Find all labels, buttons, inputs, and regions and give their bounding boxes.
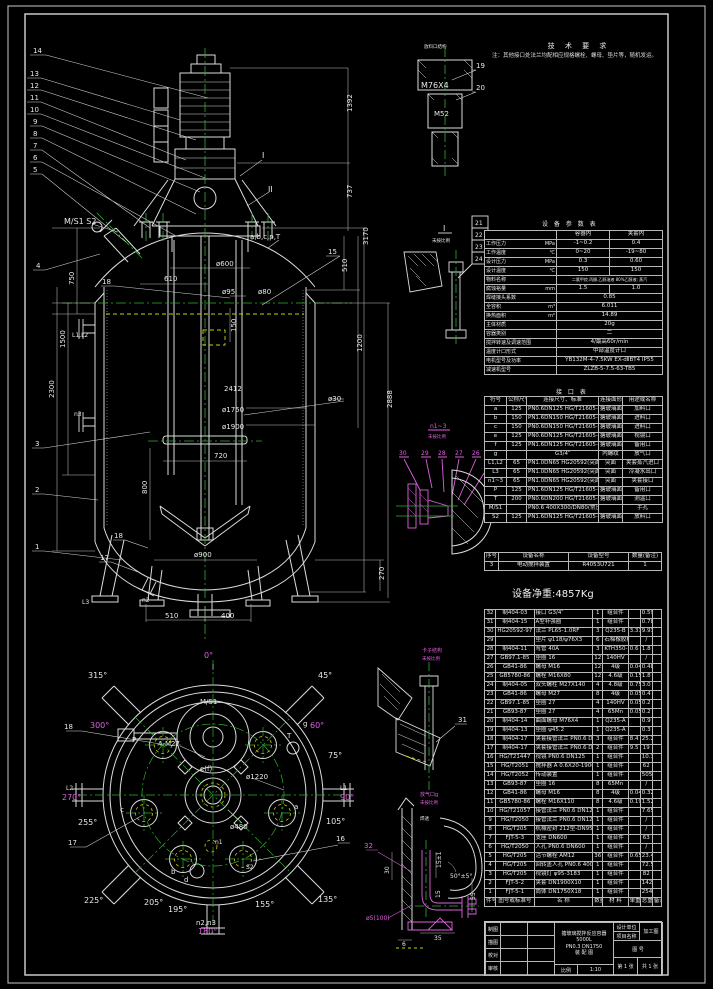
label-ms1-s2: M/S1 S2	[64, 217, 96, 226]
balloon-18: 18	[102, 278, 111, 286]
bom-row: 11GB5780-86螺栓 M16X1108 4.6级0.191.52	[485, 799, 662, 808]
balloon-1: 1	[35, 543, 39, 551]
balloon-20: 20	[476, 84, 485, 92]
nozzle-row: f125 PN1.6DN125 HG/T21605-91搪玻璃面 备用口	[485, 442, 663, 451]
balloon-27: 27	[455, 450, 463, 457]
balloon-5: 5	[33, 166, 37, 174]
angle-195: 195°	[168, 905, 187, 914]
bom-row: 10HG/T21057接管法兰 PN0.6 DN1251 组合件7.65	[485, 808, 662, 817]
bom-row: 23GB41-86螺母 M278 4级0.050.4	[485, 691, 662, 700]
detail-g-subtitle: 未按比例	[420, 799, 438, 806]
dim-g15: 15	[435, 890, 442, 898]
bom-row: 19制404-13垫圈 ψ45.21 Q235-A0.3	[485, 727, 662, 736]
nozzle-row: a125 PN0.6DN125 HG/T21605-91搪玻璃面 加料口	[485, 406, 663, 415]
balloon-2: 2	[35, 486, 39, 494]
label-L1: L1	[340, 785, 347, 792]
tb-work-tag: 加工图	[639, 922, 663, 941]
dip-tube	[236, 240, 242, 505]
label-ef: e(f)	[200, 765, 213, 773]
label-n3: n3	[74, 411, 82, 418]
nozzle-header-row: 符号公称尺寸连接尺寸、标准连接面形式用途或名称	[485, 397, 663, 406]
detail-clamp-subtitle: 未按比例	[422, 655, 440, 662]
angle-105: 105°	[326, 817, 345, 826]
angle-0: 0°	[204, 651, 213, 660]
balloon-21: 21	[475, 220, 483, 227]
balloon-28: 28	[438, 450, 446, 457]
label-n1: n1	[215, 839, 223, 846]
section-mark-1: I	[262, 151, 264, 160]
dim-g50: 50°±5°	[450, 873, 472, 880]
dim-150: 150	[230, 319, 238, 332]
cad-assembly-drawing: 14 13 12 11 10 9 8 7 6 5 4 3 2 1 15 18 1…	[0, 0, 713, 989]
bom-row: 24制404-05双头螺柱 M27X1404 4.8级0.753.0	[485, 682, 662, 691]
balloon-23: 23	[475, 244, 483, 251]
tb-row-check: 校对	[485, 948, 501, 962]
tb-sheets: 共 1 张	[637, 957, 663, 976]
balloon-4: 4	[36, 262, 41, 270]
dim-g5: ø5(100)	[366, 915, 390, 922]
bom-table: 32制404-03接口 G3/4″1 组合件0.59 31制404-15A型补强…	[484, 609, 662, 907]
label-4m27: 4-M27	[158, 740, 180, 748]
device-row: 3电动搅拌装置R4053U7211	[485, 562, 662, 571]
label-b: b	[171, 868, 176, 876]
dim-g55: 55	[470, 892, 477, 900]
angle-270: 270°	[62, 793, 81, 802]
bom-row: 27GB97.1-85垫圈 1612 140HV/	[485, 655, 662, 664]
parameter-table: 容器内夹套内 工作压力MPa-1~0.20.4 工作温度℃0~20-19~80 …	[484, 230, 663, 375]
detail-g-title: 放气口g	[420, 791, 438, 798]
plan-view-leaders	[66, 664, 350, 861]
dim-737: 737	[346, 185, 354, 198]
angle-90: 90°	[340, 793, 354, 802]
dim-1200: 1200	[356, 334, 364, 352]
bom-row: 4HG/T205回转盖人孔 PN0.6 400X3001 组合件72.5	[485, 862, 662, 871]
nozzle-table: 符号公称尺寸连接尺寸、标准连接面形式用途或名称 a125 PN0.6DN125 …	[484, 396, 663, 523]
bom-row: 20制404-14曲面螺母 M76X41 Q235-A0.9	[485, 718, 662, 727]
tb-blank-4	[500, 961, 528, 976]
bom-row: 15HG/T2051搅拌器 A 0.6X20-19001 组合件62	[485, 763, 662, 772]
dim-3170: 3170	[362, 227, 370, 245]
device-header-row: 序号设备名称设备型号数量(备注)	[485, 553, 662, 562]
dim-800: 800	[141, 481, 149, 494]
bom-row: 1FJT-5-1筒体 DN1750X181 组合件2549	[485, 889, 662, 898]
tb-blank-7	[527, 948, 555, 962]
dim-g15a: 15±1	[436, 851, 443, 868]
front-view-text: 14 13 12 11 10 9 8 7 6 5 4 3 2 1 15 18 1…	[30, 47, 394, 620]
balloon-3: 3	[35, 440, 39, 448]
label-n2: n2	[142, 597, 150, 604]
tb-blank-5	[527, 922, 555, 936]
angle-205: 205°	[144, 898, 163, 907]
balloon-22: 22	[475, 232, 483, 239]
angle-255: 255°	[78, 818, 97, 827]
motor-bracket	[154, 88, 168, 162]
balloon-8: 8	[33, 130, 37, 138]
lug-315	[102, 686, 141, 725]
label-ms1: M/S1	[200, 698, 217, 706]
nozzle-row: n1~365 PN1.0DN65 HG20592(突面RF)突面 夹套接口	[485, 478, 663, 487]
dim-750: 750	[68, 272, 76, 285]
bom-row: 7FJT-5-3支座 DN6001 组合件63	[485, 835, 662, 844]
dim-720: 720	[214, 452, 227, 460]
balloon-14: 14	[33, 47, 42, 55]
label-c: c	[120, 806, 124, 814]
tb-blank-6	[527, 935, 555, 949]
label-abcpt: a,b,c,p,T	[250, 233, 281, 241]
tb-blank-8	[527, 961, 555, 976]
nozzle-row: M/S1 PN0.6 400X300/DN80(常压) 手孔	[485, 505, 663, 514]
dim-95: ø95	[222, 288, 235, 296]
balloon-9: 9	[33, 118, 37, 126]
bom-row: 13GB93-87垫圈 168 65Mn/	[485, 781, 662, 790]
tb-scale-label: 比例	[554, 964, 578, 976]
dim-2300: 2300	[48, 380, 56, 398]
tb-row-draw: 制图	[485, 922, 501, 936]
detail-n13: n1~3 未按比例 30 29 28 27 26 25 搪玻璃测温套管	[396, 423, 498, 554]
bom-row: 14HG/T2052传动装置1 组合件505	[485, 772, 662, 781]
angle-45: 45°	[318, 671, 332, 680]
tb-blank-1	[500, 922, 528, 936]
label-g: g	[303, 720, 307, 728]
detail-I-title: I	[443, 224, 445, 233]
angle-135: 135°	[318, 895, 337, 904]
dim-400: 400	[221, 612, 234, 620]
nozzle-row: b150 PN1.6DN150 HG/T21605-91搪玻璃面 进料口	[485, 415, 663, 424]
handhole-ms1	[100, 220, 140, 262]
angle-225: 225°	[84, 896, 103, 905]
bom-row: 22GB97.1-85垫圈 274 140HV0.050.2	[485, 700, 662, 709]
balloon-11: 11	[30, 94, 39, 102]
weld-note: 焊透	[420, 815, 429, 822]
dim-2888: 2888	[386, 390, 394, 408]
label-a: a	[294, 803, 298, 811]
angle-315: 315°	[88, 671, 107, 680]
nozzle-row: P125 PN1.6DN125 HG/T21605-91搪玻璃面 备用口	[485, 487, 663, 496]
dim-270: 270	[378, 567, 386, 580]
leader-lines	[27, 55, 344, 572]
bom-row: 18制404-17夹套接管法兰 PN0.6 DN1253 组合件8.425.2	[485, 736, 662, 745]
dim-510: 510	[341, 259, 349, 272]
dim-1500: 1500	[59, 330, 67, 348]
detail-clamp: 卡子结构 未按比例 31	[378, 647, 467, 792]
label-d: d	[184, 876, 188, 884]
tb-scale-value: 1:10	[577, 964, 614, 976]
detail-clamp-title: 卡子结构	[422, 647, 442, 654]
balloon-32: 32	[364, 842, 373, 850]
nozzle-table-title: 接 口 表	[556, 387, 588, 396]
dim-1392: 1392	[346, 94, 354, 112]
bom-row: 12GB41-86螺母 M168 4级0.040.32	[485, 790, 662, 799]
detail-I: I 未按比例 21 22 23 24	[404, 216, 488, 345]
bom-row: 30HG20592-97法兰 PL65-1.0RF3 Q235-B3.319.9…	[485, 628, 662, 637]
balloon-17: 17	[100, 554, 109, 562]
detail-I-subtitle: 未按比例	[432, 237, 450, 244]
dim-610: 610	[164, 275, 177, 283]
tb-blank-2	[500, 935, 528, 949]
device-table: 序号设备名称设备型号数量(备注) 3电动搅拌装置R4053U7211	[484, 552, 662, 571]
angle-60: 60°	[310, 721, 324, 730]
bom-row: 29垫片 ψ118/ψ76X36 石棉橡胶板/	[485, 637, 662, 646]
nozzle-row: L1,L265 PN1.0DN65 HG20592(突面RF)突面 夹套蒸汽进口	[485, 460, 663, 469]
bom-row: 26GB41-86螺母 M1612 4级0.040.48	[485, 664, 662, 673]
angle-75: 75°	[328, 751, 342, 760]
param-table-title: 设 备 参 数 表	[542, 219, 598, 228]
tb-blank-3	[500, 948, 528, 962]
nozzle-row: g G3/4″内螺纹 放气口	[485, 451, 663, 460]
dim-30: ø30	[328, 395, 341, 403]
detail-cap-title: 放料口结构	[424, 43, 447, 50]
balloon-6: 6	[33, 154, 38, 162]
balloon-18p: 18	[64, 723, 73, 731]
tb-drawing-no: 图 号	[613, 940, 663, 958]
bom-row: 28制404-11弯管 40A3 KTH350-100.61.8	[485, 646, 662, 655]
balloon-31: 31	[458, 716, 467, 724]
tb-product-title: 搪玻璃搅拌反应容器 5000L PN0.3 DN1750 装 配 图	[554, 922, 614, 965]
label-p: P	[132, 736, 136, 744]
tb-sheet: 第 1 张	[613, 957, 638, 976]
balloon-19: 19	[476, 62, 485, 70]
dim-510b: 510	[165, 612, 178, 620]
tech-title: 技 术 要 求	[492, 42, 666, 51]
detail-cap: 放料口结构 M76X4 M52 19 20	[418, 43, 485, 178]
balloon-26: 26	[472, 450, 480, 457]
technical-requirements: 技 术 要 求 注：其他接口处法兰均配相应规格螺栓、螺母、垫片等，随机发运。	[492, 42, 666, 60]
label-L2: L2	[66, 785, 73, 792]
label-l3: L3	[82, 599, 89, 606]
label-t: T	[286, 732, 292, 740]
param-col-vessel: 容器内	[557, 231, 610, 240]
bom-row: 31制404-15A型补强圈1 组合件0.78	[485, 619, 662, 628]
dim-1750: ø1750	[222, 406, 244, 414]
bom-row: 6HG/T2050人孔 PN0.6 DN6001 组合件/	[485, 844, 662, 853]
detail-n13-subtitle: 未按比例	[428, 433, 446, 440]
balloon-13: 13	[30, 70, 39, 78]
balloon-17p: 17	[68, 839, 77, 847]
thread-m76x4: M76X4	[421, 81, 449, 90]
param-col-jacket: 夹套内	[610, 231, 663, 240]
angle-300: 300°	[90, 721, 109, 730]
tb-row-trace: 描图	[485, 935, 501, 949]
dim-1220: ø1220	[246, 773, 268, 781]
bom-row: 25GB5780-86螺栓 M16X8012 4.6级0.151.8	[485, 673, 662, 682]
bom-row: 17制404-17夹套接管法兰 PN0.6 DN1502 组合件9.519	[485, 745, 662, 754]
angle-155: 155°	[255, 900, 274, 909]
dim-g30: 30	[384, 866, 391, 874]
dim-g6: 6	[402, 941, 406, 948]
tech-note: 注：其他接口处法兰均配相应规格螺栓、螺母、垫片等，随机发运。	[492, 53, 666, 60]
bom-row: 16HG/T21447视镜 PN0.6 DN1251 组合件10.3	[485, 754, 662, 763]
net-weight-note: 设备净重:4857Kg	[512, 585, 594, 600]
balloon-16p: 16	[336, 835, 345, 843]
section-mark-2: II	[268, 185, 273, 194]
dim-g35: 35	[434, 935, 442, 942]
angle-180: 180°	[198, 927, 217, 936]
balloon-24: 24	[475, 256, 483, 263]
nozzle-row: e125 PN0.6DN125 HG/T21605-91搪玻璃面 视镜口	[485, 433, 663, 442]
dim-600: ø600	[216, 260, 234, 268]
bom-header-row: 件号图号或标准号名 称数量 材 料单重总重备注	[485, 898, 662, 907]
nozzle-row: S2125 PN1.6DN125 HG/T21605-91搪玻璃面 放料口	[485, 514, 663, 523]
dim-80: ø80	[258, 288, 271, 296]
dim-900: ø900	[194, 551, 212, 559]
tb-row-audit: 审核	[485, 961, 501, 976]
balloon-10: 10	[30, 106, 39, 114]
bom-row: 9HG/T2050接管法兰 PN0.6 DN1251 组合件/	[485, 817, 662, 826]
bom-row: 3HG/T205视镜灯 ψ95-31831 组合件82	[485, 871, 662, 880]
lug-225	[102, 865, 141, 904]
bom-row: 8HG/T205机械密封 212型-DN951 组合件/	[485, 826, 662, 835]
bom-row: 32制404-03接口 G3/4″1 组合件0.59	[485, 610, 662, 619]
nozzle-row: T200 PN0.6DN200 HG/T21605-91搪玻璃面 测温口	[485, 496, 663, 505]
balloon-18b: 18	[114, 532, 123, 540]
balloon-29: 29	[421, 450, 429, 457]
dim-480: ø480	[230, 823, 248, 831]
bom-row: 5HG/T205活节螺栓 AM1236 组合件0.6523.4	[485, 853, 662, 862]
dim-2412: 2412	[224, 385, 242, 393]
dim-1900: ø1900	[222, 423, 244, 431]
balloon-15: 15	[328, 248, 337, 256]
detail-n13-title: n1~3	[430, 423, 447, 430]
balloon-30: 30	[399, 450, 407, 457]
balloon-7: 7	[33, 142, 37, 150]
detail-vent-g: 放气口g 未按比例 焊透 32 30 15±1 50°±5° 15 55 35 …	[364, 791, 482, 948]
nozzle-row: L365 PN1.0DN65 HG20592(突面RF)突面 冷凝水出口	[485, 469, 663, 478]
title-block: 制图 描图 校对 审核 搪玻璃搅拌反应容器 5000L PN0.3 DN1750…	[484, 921, 662, 976]
thread-m52: M52	[434, 110, 449, 118]
bom-row: 2FJT-5-2夹套 DN1900X101 组合件1422	[485, 880, 662, 889]
bom-row: 21GB93-87垫圈 274 65Mn0.050.2	[485, 709, 662, 718]
label-s2: S2	[246, 864, 254, 871]
label-n2n3: n2,n3	[196, 919, 216, 927]
nozzle-row: c150 PN0.6DN150 HG/T21605-91搪玻璃面 进料口	[485, 424, 663, 433]
balloon-12: 12	[30, 82, 39, 90]
